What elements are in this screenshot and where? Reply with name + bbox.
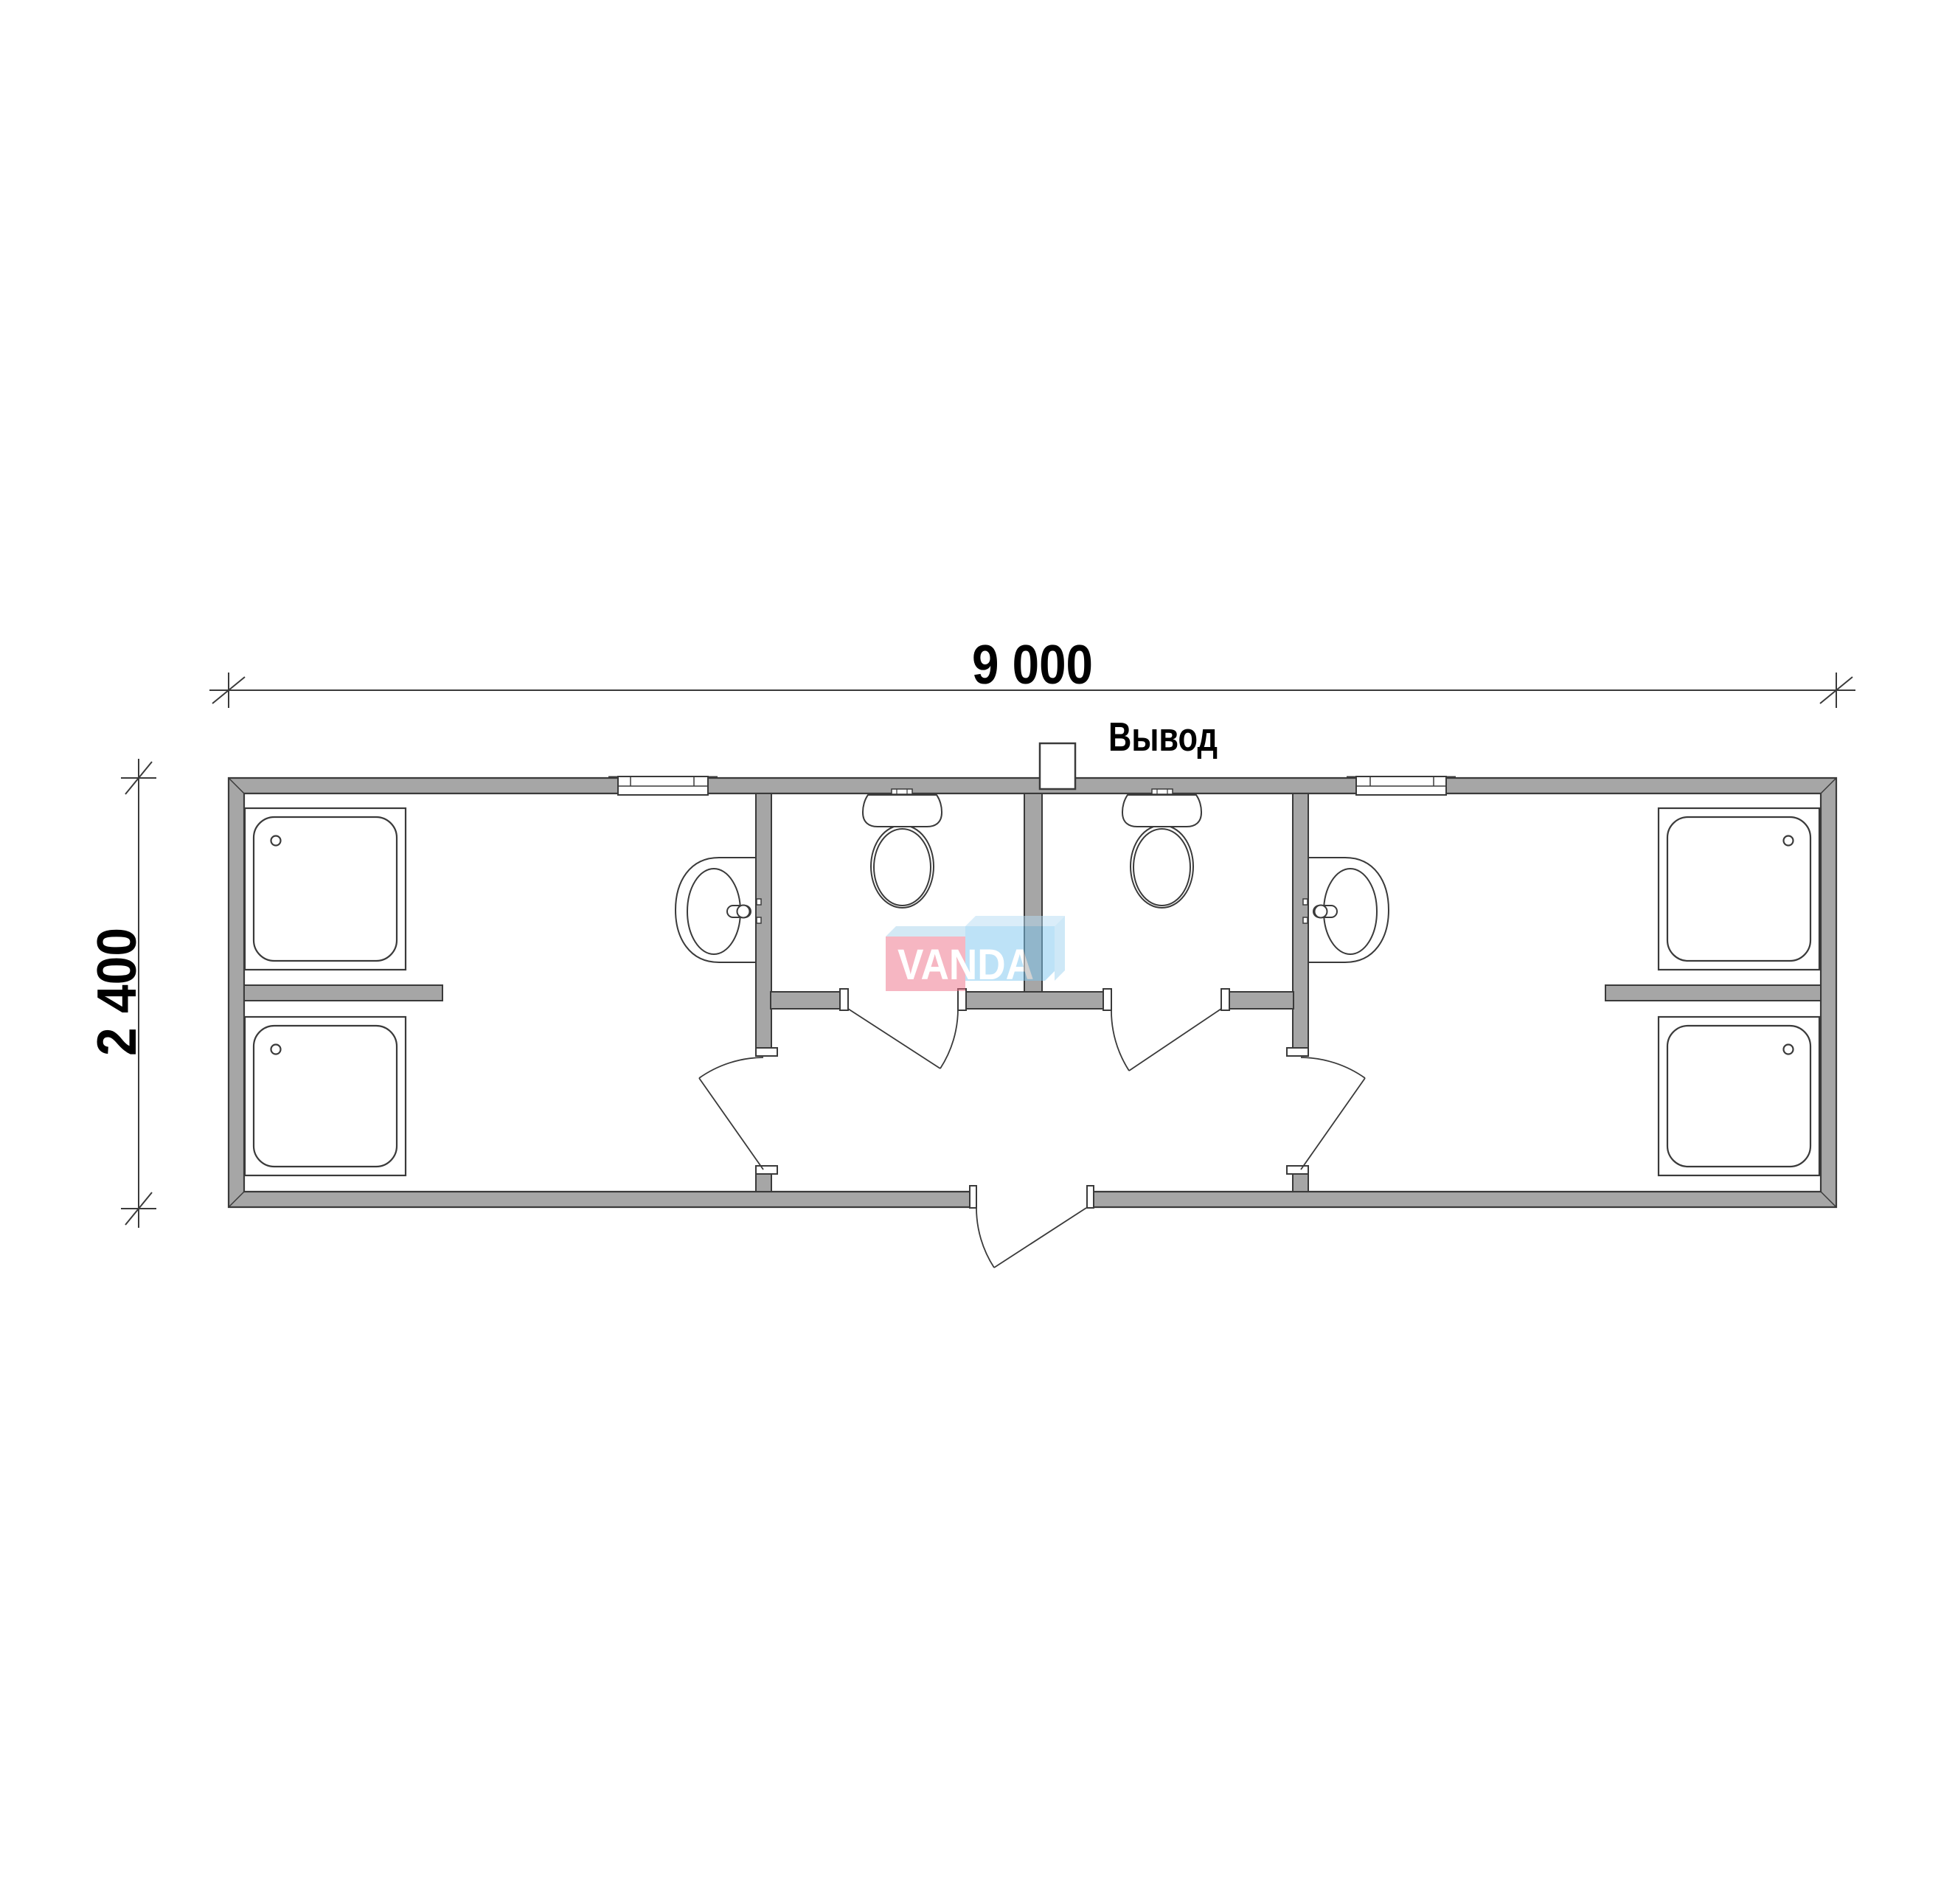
svg-text:VANDA: VANDA (897, 941, 1034, 989)
svg-text:2 400: 2 400 (86, 928, 147, 1056)
svg-text:9 000: 9 000 (972, 633, 1093, 695)
svg-text:Вывод: Вывод (1108, 714, 1218, 760)
